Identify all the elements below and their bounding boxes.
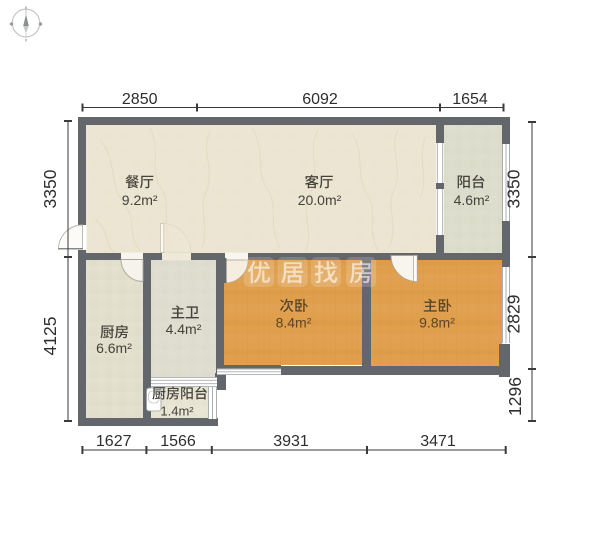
svg-text:3350: 3350 xyxy=(40,169,60,208)
svg-text:3350: 3350 xyxy=(504,169,524,208)
svg-text:20.0m²: 20.0m² xyxy=(298,192,342,208)
svg-text:3931: 3931 xyxy=(273,433,309,450)
svg-text:9.2m²: 9.2m² xyxy=(122,192,158,208)
svg-text:2829: 2829 xyxy=(504,295,524,334)
svg-text:8.4m²: 8.4m² xyxy=(276,315,312,331)
svg-text:2850: 2850 xyxy=(122,91,158,108)
svg-text:1627: 1627 xyxy=(96,433,132,450)
svg-text:3471: 3471 xyxy=(420,433,456,450)
svg-text:6.6m²: 6.6m² xyxy=(96,340,132,356)
svg-text:1654: 1654 xyxy=(452,91,488,108)
svg-text:1296: 1296 xyxy=(505,377,525,416)
svg-text:4.6m²: 4.6m² xyxy=(454,192,490,208)
svg-text:4125: 4125 xyxy=(40,317,60,356)
svg-text:9.8m²: 9.8m² xyxy=(419,315,455,331)
svg-text:1566: 1566 xyxy=(160,433,196,450)
svg-text:6092: 6092 xyxy=(302,91,338,108)
svg-text:1.4m²: 1.4m² xyxy=(160,404,194,419)
svg-text:4.4m²: 4.4m² xyxy=(166,321,202,337)
